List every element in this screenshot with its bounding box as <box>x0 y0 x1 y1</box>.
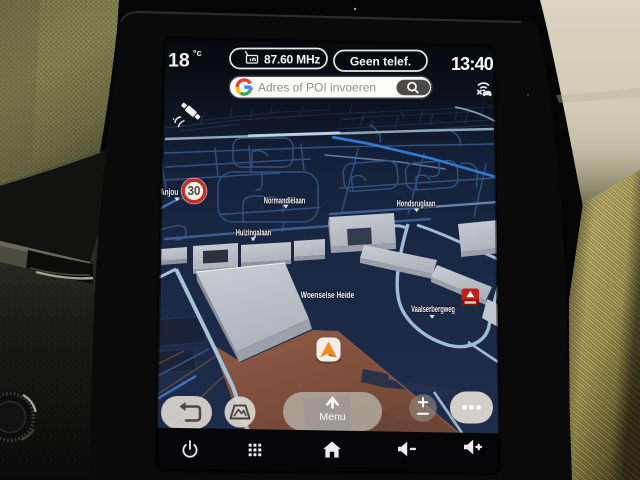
svg-text:18: 18 <box>168 50 190 72</box>
svg-text:Hondsruglaan: Hondsruglaan <box>397 198 436 209</box>
svg-text:Woenselse Heide: Woenselse Heide <box>301 290 355 301</box>
svg-text:87.60 MHz: 87.60 MHz <box>264 53 320 67</box>
svg-text:Huizingalaan: Huizingalaan <box>236 227 272 238</box>
svg-text:Vaalserbergweg: Vaalserbergweg <box>411 304 455 315</box>
svg-text:Geen telef.: Geen telef. <box>350 55 411 69</box>
svg-text:°c: °c <box>193 48 202 58</box>
svg-text:Normandiëlaan: Normandiëlaan <box>264 195 306 206</box>
svg-text:Adres of POI invoeren: Adres of POI invoeren <box>258 81 376 95</box>
svg-text:13:40: 13:40 <box>451 54 494 74</box>
svg-text:Menu: Menu <box>319 411 345 423</box>
svg-text:30: 30 <box>188 184 201 199</box>
